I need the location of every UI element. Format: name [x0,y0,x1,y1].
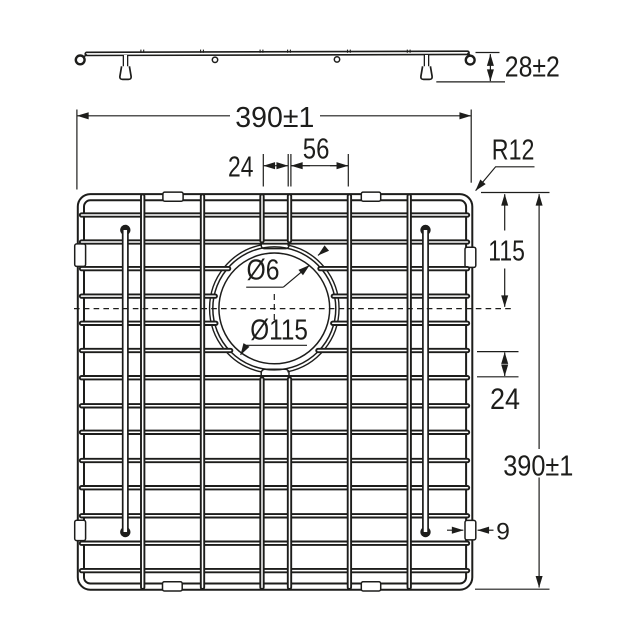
svg-text:9: 9 [496,519,510,546]
svg-text:24: 24 [490,383,520,416]
svg-text:Ø6: Ø6 [247,254,280,286]
svg-text:28±2: 28±2 [505,51,560,83]
svg-text:Ø115: Ø115 [250,315,308,347]
svg-text:24: 24 [228,151,254,183]
svg-text:390±1: 390±1 [235,102,314,134]
svg-text:56: 56 [303,133,330,165]
svg-text:115: 115 [488,235,525,267]
svg-text:R12: R12 [492,134,535,166]
svg-text:390±1: 390±1 [503,451,573,483]
